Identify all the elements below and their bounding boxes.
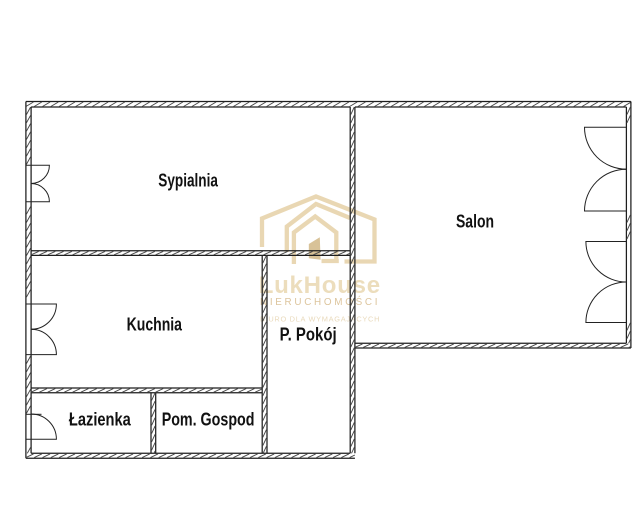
- svg-text:Salon: Salon: [456, 210, 494, 231]
- svg-text:NIERUCHOMOŚCI: NIERUCHOMOŚCI: [260, 296, 380, 308]
- svg-text:Łazienka: Łazienka: [69, 409, 131, 430]
- svg-text:Kuchnia: Kuchnia: [127, 314, 183, 335]
- svg-text:Sypialnia: Sypialnia: [158, 170, 218, 191]
- svg-text:LukHouse: LukHouse: [259, 272, 380, 299]
- svg-text:Pom. Gospod: Pom. Gospod: [162, 409, 255, 430]
- svg-text:P. Pokój: P. Pokój: [280, 323, 337, 344]
- svg-text:BIURO DLA WYMAGAJĄCYCH: BIURO DLA WYMAGAJĄCYCH: [260, 315, 380, 324]
